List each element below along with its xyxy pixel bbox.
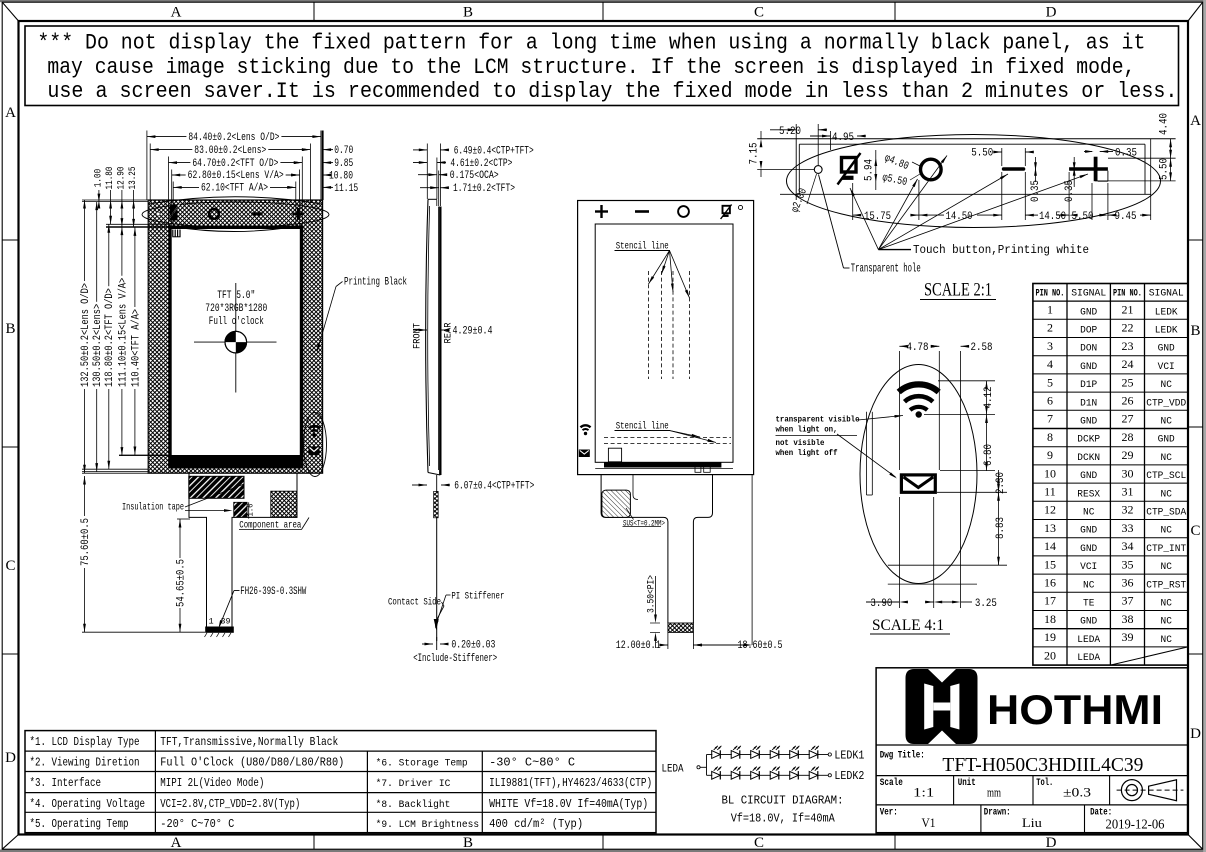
svg-text:29: 29 <box>1121 448 1133 462</box>
svg-text:2.30: 2.30 <box>995 472 1007 494</box>
svg-text:NC: NC <box>1161 561 1172 573</box>
svg-text:2.58: 2.58 <box>971 342 993 354</box>
svg-text:62.10<TFT A/A>: 62.10<TFT A/A> <box>201 183 268 195</box>
svg-text:15.75: 15.75 <box>864 211 891 223</box>
svg-text:WHITE Vf=18.0V If=40mA(Typ): WHITE Vf=18.0V If=40mA(Typ) <box>489 797 648 811</box>
svg-text:NC: NC <box>1083 579 1094 591</box>
svg-text:C: C <box>1190 523 1200 539</box>
svg-text:LEDA: LEDA <box>1077 652 1100 664</box>
svg-text:*7. Driver IC: *7. Driver IC <box>376 778 451 790</box>
svg-text:132.50±0.2<Lens O/D>: 132.50±0.2<Lens O/D> <box>80 283 92 387</box>
svg-text:25: 25 <box>1121 375 1133 389</box>
svg-text:12.00±0.1: 12.00±0.1 <box>616 640 661 652</box>
svg-text:27: 27 <box>1121 412 1133 426</box>
svg-text:Tol.: Tol. <box>1036 777 1053 789</box>
svg-text:-30° C~80° C: -30° C~80° C <box>489 756 575 770</box>
svg-text:DOP: DOP <box>1080 325 1097 337</box>
svg-text:11: 11 <box>1044 485 1056 499</box>
svg-text:B: B <box>1190 323 1200 339</box>
svg-text:Ver:: Ver: <box>880 806 898 818</box>
svg-text:may cause image sticking due t: may cause image sticking due to the LCM … <box>47 55 1135 80</box>
svg-text:7: 7 <box>1047 412 1053 426</box>
svg-text:VCI: VCI <box>1080 561 1097 573</box>
svg-text:5.94: 5.94 <box>864 159 876 181</box>
svg-text:75.60±0.5: 75.60±0.5 <box>80 518 92 566</box>
svg-text:PIN NO.: PIN NO. <box>1035 288 1064 300</box>
svg-text:400 cd/m² (Typ): 400 cd/m² (Typ) <box>489 817 583 831</box>
svg-text:Insulation tape: Insulation tape <box>122 502 184 514</box>
svg-text:24: 24 <box>1121 357 1133 371</box>
svg-text:*5. Operating Temp: *5. Operating Temp <box>30 817 129 831</box>
svg-text:D1N: D1N <box>1080 397 1097 409</box>
svg-text:D: D <box>1046 5 1057 21</box>
svg-text:9: 9 <box>1047 448 1053 462</box>
svg-text:REAR: REAR <box>444 323 455 344</box>
svg-text:Transparent hole: Transparent hole <box>851 262 921 276</box>
svg-text:LEDK1: LEDK1 <box>834 749 864 762</box>
svg-text:DCKP: DCKP <box>1077 434 1100 446</box>
svg-text:1.6: 1.6 <box>246 504 256 517</box>
svg-text:5.50: 5.50 <box>971 148 993 160</box>
svg-text:D: D <box>5 750 16 766</box>
svg-text:±0.3: ±0.3 <box>1063 784 1091 799</box>
svg-text:4.78: 4.78 <box>907 342 929 354</box>
svg-text:*4. Operating Voltage: *4. Operating Voltage <box>30 797 146 811</box>
svg-text:12.90: 12.90 <box>115 167 127 190</box>
svg-text:GND: GND <box>1080 616 1097 628</box>
svg-text:*9. LCM Brightness: *9. LCM Brightness <box>376 819 480 831</box>
svg-text:16: 16 <box>1044 576 1056 590</box>
svg-text:TE: TE <box>1083 598 1094 610</box>
svg-text:*6. Storage Temp: *6. Storage Temp <box>376 758 468 770</box>
svg-text:CTP_SDA: CTP_SDA <box>1146 507 1187 519</box>
svg-text:PI Stiffener: PI Stiffener <box>451 591 504 603</box>
svg-text:6.49±0.4<CTP+TFT>: 6.49±0.4<CTP+TFT> <box>454 145 534 157</box>
svg-text:D1P: D1P <box>1080 379 1097 391</box>
svg-text:A: A <box>171 835 182 851</box>
svg-text:SCALE 4:1: SCALE 4:1 <box>872 617 944 634</box>
svg-text:0.70: 0.70 <box>334 145 353 157</box>
svg-text:4.95: 4.95 <box>832 132 854 144</box>
svg-text:LEDA: LEDA <box>662 764 684 776</box>
svg-text:TFT,Transmissive,Normally Blac: TFT,Transmissive,Normally Black <box>160 735 338 749</box>
svg-text:26: 26 <box>1121 394 1133 408</box>
svg-text:DCKN: DCKN <box>1077 452 1100 464</box>
svg-text:B: B <box>463 835 473 851</box>
svg-text:19: 19 <box>1044 630 1056 644</box>
svg-text:B: B <box>5 321 15 337</box>
svg-text:1.00: 1.00 <box>92 169 104 187</box>
svg-text:111.10±0.15<Lens V/A>: 111.10±0.15<Lens V/A> <box>117 278 129 387</box>
svg-text:5.50: 5.50 <box>1158 158 1170 180</box>
svg-text:V1: V1 <box>922 815 936 830</box>
svg-text:SIGNAL: SIGNAL <box>1071 288 1106 300</box>
svg-text:14.50: 14.50 <box>1039 211 1066 223</box>
svg-text:6: 6 <box>1047 394 1053 408</box>
svg-text:6.80: 6.80 <box>983 444 995 466</box>
svg-text:6.07±0.4<CTP+TFT>: 6.07±0.4<CTP+TFT> <box>454 480 534 492</box>
svg-text:0.175<OCA>: 0.175<OCA> <box>450 170 499 182</box>
svg-text:28: 28 <box>1121 430 1133 444</box>
svg-text:64.70±0.2<TFT O/D>: 64.70±0.2<TFT O/D> <box>192 158 278 170</box>
svg-text:Unit: Unit <box>958 777 976 789</box>
svg-text:mm: mm <box>987 784 1001 799</box>
svg-text:TFT 5.0": TFT 5.0" <box>217 290 255 302</box>
svg-text:<Include-Stiffener>: <Include-Stiffener> <box>413 653 497 665</box>
svg-text:when light off: when light off <box>776 448 838 458</box>
svg-text:9.45: 9.45 <box>1115 211 1137 223</box>
svg-text:33: 33 <box>1121 521 1133 535</box>
svg-text:HOTHMI: HOTHMI <box>987 686 1163 733</box>
svg-text:NC: NC <box>1161 488 1172 500</box>
svg-text:NC: NC <box>1161 616 1172 628</box>
svg-text:15: 15 <box>1044 557 1056 571</box>
svg-text:0.35: 0.35 <box>1064 180 1076 202</box>
svg-text:10: 10 <box>1044 466 1056 480</box>
svg-text:Drawn:: Drawn: <box>984 806 1011 818</box>
svg-text:110.40<TFT A/A>: 110.40<TFT A/A> <box>130 309 142 387</box>
svg-text:FRONT: FRONT <box>413 323 424 349</box>
svg-text:*** Do not display the fixed p: *** Do not display the fixed pattern for… <box>37 31 1145 56</box>
svg-text:D: D <box>1046 835 1057 851</box>
svg-text:32: 32 <box>1121 503 1133 517</box>
svg-text:37: 37 <box>1121 594 1133 608</box>
svg-text:1:1: 1:1 <box>913 784 934 799</box>
svg-text:23: 23 <box>1121 339 1133 353</box>
svg-text:FH26-39S-0.3SHW: FH26-39S-0.3SHW <box>240 586 306 598</box>
svg-text:Printing Black: Printing Black <box>344 277 407 289</box>
svg-text:GND: GND <box>1158 343 1175 355</box>
svg-text:21: 21 <box>1121 303 1133 317</box>
svg-text:1.71±0.2<TFT>: 1.71±0.2<TFT> <box>453 183 515 195</box>
svg-text:A: A <box>5 105 16 121</box>
svg-text:transparent visible: transparent visible <box>776 415 860 425</box>
svg-text:17: 17 <box>1044 594 1056 608</box>
svg-text:LEDK: LEDK <box>1155 325 1178 337</box>
svg-text:CTP_VDD: CTP_VDD <box>1146 397 1186 409</box>
svg-text:35: 35 <box>1121 557 1133 571</box>
svg-text:B: B <box>463 5 473 21</box>
svg-text:GND: GND <box>1080 416 1097 428</box>
svg-text:7.15: 7.15 <box>749 143 761 165</box>
svg-text:-20° C~70° C: -20° C~70° C <box>160 817 234 831</box>
svg-text:D: D <box>1190 726 1201 742</box>
svg-text:20: 20 <box>1044 648 1056 662</box>
svg-text:2: 2 <box>1047 321 1053 335</box>
svg-text:Vf=18.0V, If=40mA: Vf=18.0V, If=40mA <box>731 813 835 826</box>
svg-text:MIPI 2L(Video Mode): MIPI 2L(Video Mode) <box>160 776 264 790</box>
svg-text:4.61±0.2<CTP>: 4.61±0.2<CTP> <box>450 158 512 170</box>
svg-text:LEDA: LEDA <box>1077 634 1100 646</box>
svg-text:5.50: 5.50 <box>1072 211 1094 223</box>
svg-text:Touch button,Printing white: Touch button,Printing white <box>913 243 1089 257</box>
svg-text:GND: GND <box>1080 470 1097 482</box>
svg-text:Liu: Liu <box>1022 815 1043 830</box>
svg-text:CTP_INT: CTP_INT <box>1146 543 1186 555</box>
svg-text:8: 8 <box>1047 430 1053 444</box>
svg-text:62.80±0.15<Lens V/A>: 62.80±0.15<Lens V/A> <box>188 170 284 182</box>
svg-text:9.85: 9.85 <box>334 158 353 170</box>
svg-text:130.50±0.2<Lens>: 130.50±0.2<Lens> <box>92 304 104 387</box>
svg-text:BL CIRCUIT DIAGRAM:: BL CIRCUIT DIAGRAM: <box>722 795 844 808</box>
svg-text:84.40±0.2<Lens O/D>: 84.40±0.2<Lens O/D> <box>188 132 279 144</box>
svg-text:C: C <box>5 558 15 574</box>
svg-text:2019-12-06: 2019-12-06 <box>1106 817 1165 832</box>
svg-text:8.83: 8.83 <box>995 517 1007 539</box>
svg-text:NC: NC <box>1161 598 1172 610</box>
svg-text:ILI9881(TFT),HY4623/4633(CTP): ILI9881(TFT),HY4623/4633(CTP) <box>489 776 652 790</box>
svg-text:*8. Backlight: *8. Backlight <box>376 799 451 811</box>
svg-text:A: A <box>171 5 182 21</box>
svg-text:4.40: 4.40 <box>1158 113 1170 135</box>
svg-text:Dwg Title:: Dwg Title: <box>880 750 925 762</box>
svg-text:RESX: RESX <box>1077 488 1100 500</box>
svg-text:54.65±0.5: 54.65±0.5 <box>175 559 187 607</box>
svg-text:C: C <box>754 5 764 21</box>
svg-text:5.20: 5.20 <box>779 126 801 138</box>
svg-text:Contact Side: Contact Side <box>388 597 441 609</box>
svg-text:Full O'Clock (U80/D80/L80/R80): Full O'Clock (U80/D80/L80/R80) <box>160 756 344 770</box>
svg-text:LEDK2: LEDK2 <box>834 770 864 783</box>
svg-text:SIGNAL: SIGNAL <box>1149 288 1184 300</box>
svg-text:11.80: 11.80 <box>104 167 116 190</box>
svg-text:Scale: Scale <box>880 777 903 789</box>
svg-text:*1. LCD Display Type: *1. LCD Display Type <box>30 735 140 749</box>
svg-text:NC: NC <box>1083 507 1094 519</box>
svg-text:4.29±0.4: 4.29±0.4 <box>453 325 493 337</box>
svg-text:NC: NC <box>1161 452 1172 464</box>
svg-text:VCI=2.8V,CTP_VDD=2.8V(Typ): VCI=2.8V,CTP_VDD=2.8V(Typ) <box>160 797 300 811</box>
svg-text:TFT-H050C3HDIIL4C39: TFT-H050C3HDIIL4C39 <box>942 754 1143 776</box>
svg-text:30: 30 <box>1121 466 1133 480</box>
svg-text:GND: GND <box>1080 543 1097 555</box>
svg-text:11.15: 11.15 <box>334 183 358 195</box>
svg-text:5: 5 <box>1047 375 1053 389</box>
svg-text:38: 38 <box>1121 612 1133 626</box>
svg-text:DON: DON <box>1080 343 1097 355</box>
svg-text:34: 34 <box>1121 539 1133 553</box>
svg-text:GND: GND <box>1158 434 1175 446</box>
svg-text:3.90: 3.90 <box>870 598 892 610</box>
svg-text:*2. Viewing Diretion: *2. Viewing Diretion <box>30 756 140 770</box>
svg-text:39: 39 <box>1121 630 1133 644</box>
svg-text:3.25: 3.25 <box>975 598 997 610</box>
svg-text:13.25: 13.25 <box>127 167 139 190</box>
svg-text:31: 31 <box>1121 485 1133 499</box>
svg-text:GND: GND <box>1080 525 1097 537</box>
svg-text:18.60±0.5: 18.60±0.5 <box>738 640 783 652</box>
svg-text:10.80: 10.80 <box>329 170 353 182</box>
svg-text:GND: GND <box>1080 306 1097 318</box>
svg-text:4: 4 <box>1047 357 1053 371</box>
svg-text:36: 36 <box>1121 576 1133 590</box>
svg-text:CTP_RST: CTP_RST <box>1146 579 1186 591</box>
svg-text:0.35: 0.35 <box>1115 147 1137 159</box>
svg-text:Full o'clock: Full o'clock <box>209 316 264 328</box>
svg-text:VCI: VCI <box>1158 361 1175 373</box>
svg-text:CTP_SCL: CTP_SCL <box>1146 470 1186 482</box>
svg-text:0.20±0.03: 0.20±0.03 <box>451 639 495 651</box>
svg-text:1: 1 <box>209 617 214 627</box>
svg-text:4.12: 4.12 <box>983 387 995 409</box>
svg-text:1: 1 <box>1047 303 1053 317</box>
svg-text:12: 12 <box>1044 503 1056 517</box>
svg-text:118.80±0.2<TFT O/D>: 118.80±0.2<TFT O/D> <box>104 288 116 387</box>
svg-text:C: C <box>754 835 764 851</box>
svg-text:GND: GND <box>1080 361 1097 373</box>
svg-text:83.00±0.2<Lens>: 83.00±0.2<Lens> <box>194 145 266 157</box>
svg-text:*3. Interface: *3. Interface <box>30 776 102 790</box>
svg-text:A: A <box>1190 113 1201 129</box>
svg-text:LEDK: LEDK <box>1155 306 1178 318</box>
svg-text:18: 18 <box>1044 612 1056 626</box>
svg-text:22: 22 <box>1121 321 1133 335</box>
svg-text:13: 13 <box>1044 521 1056 535</box>
svg-text:SCALE 2:1: SCALE 2:1 <box>924 280 992 301</box>
svg-text:3: 3 <box>1047 339 1053 353</box>
svg-text:use a screen saver.It is recom: use a screen saver.It is recommended to … <box>47 79 1177 104</box>
svg-text:when light on,: when light on, <box>776 425 838 435</box>
svg-text:14: 14 <box>1044 539 1056 553</box>
svg-text:PIN NO.: PIN NO. <box>1113 288 1142 300</box>
svg-text:NC: NC <box>1161 634 1172 646</box>
svg-text:NC: NC <box>1161 379 1172 391</box>
svg-text:not visible: not visible <box>776 438 825 448</box>
svg-text:NC: NC <box>1161 525 1172 537</box>
svg-text:720*3RGB*1280: 720*3RGB*1280 <box>205 303 267 315</box>
svg-text:NC: NC <box>1161 416 1172 428</box>
